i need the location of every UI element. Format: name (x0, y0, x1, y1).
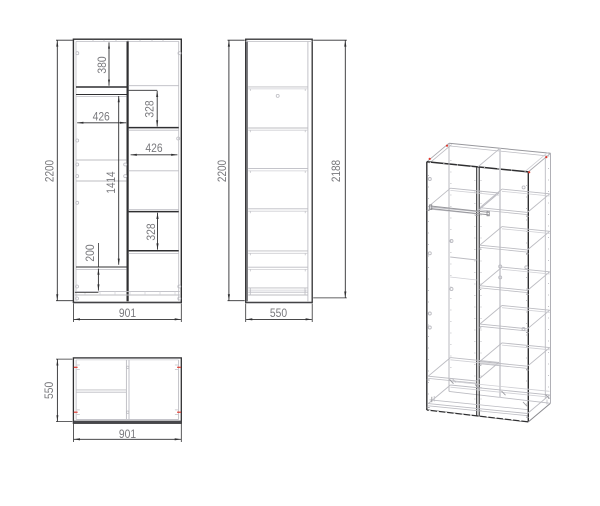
svg-text:426: 426 (145, 142, 162, 155)
svg-text:200: 200 (84, 244, 97, 261)
svg-text:426: 426 (93, 110, 110, 123)
svg-text:550: 550 (270, 307, 287, 320)
svg-text:550: 550 (43, 382, 56, 399)
svg-text:2200: 2200 (43, 160, 56, 182)
svg-text:328: 328 (143, 100, 156, 117)
svg-text:1414: 1414 (105, 171, 118, 194)
svg-text:328: 328 (145, 223, 158, 240)
svg-text:2200: 2200 (216, 160, 229, 182)
svg-text:901: 901 (119, 428, 136, 441)
svg-text:380: 380 (96, 56, 109, 73)
svg-text:2188: 2188 (330, 160, 343, 182)
svg-text:901: 901 (119, 307, 136, 320)
